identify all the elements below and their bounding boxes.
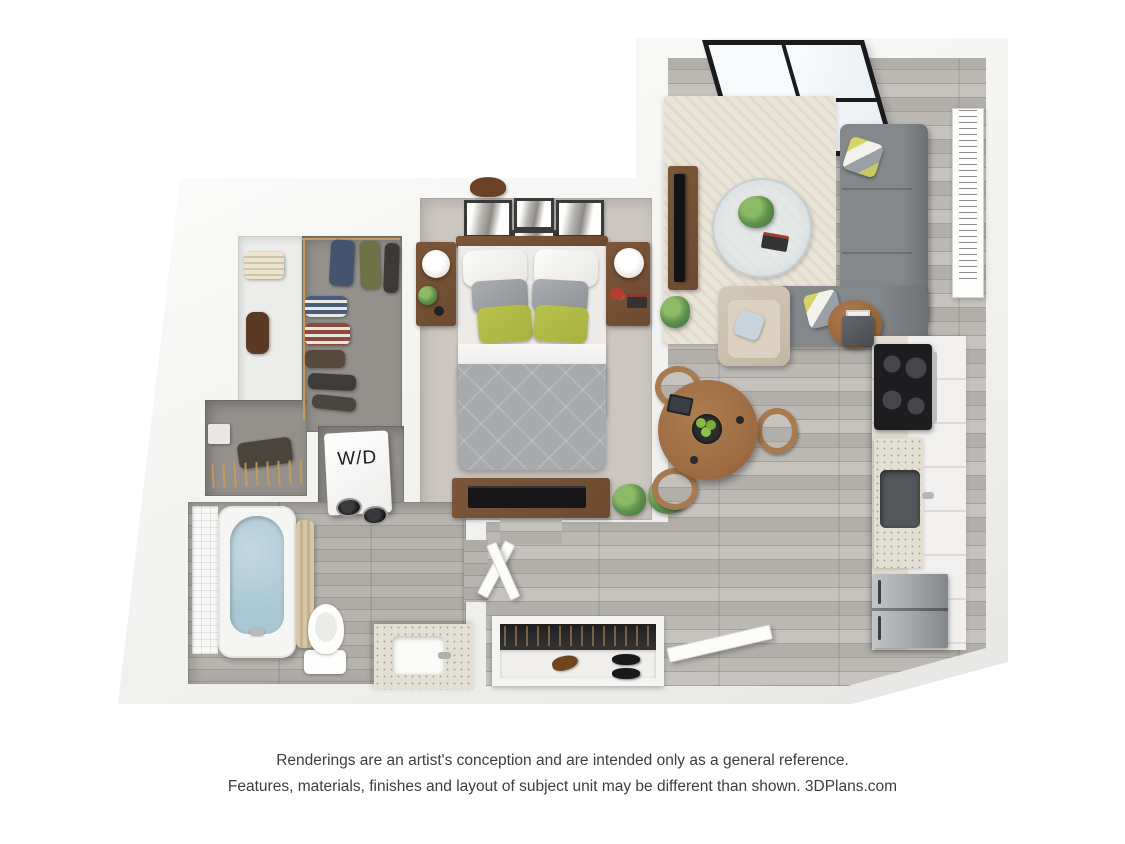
refrigerator-handle-bottom [878,616,881,640]
chair-seat [762,414,792,448]
table-cup-2 [690,456,698,464]
closet-bag-brown [246,312,269,354]
refrigerator-door-split [872,608,948,611]
wall-art-panels [952,108,984,298]
living-room-tv [674,174,685,282]
bedroom-doorway [500,518,562,544]
books-on-nightstand [627,294,647,308]
sofa-cushion-seam [842,188,912,190]
hanging-shirt-navy [329,239,355,286]
hanging-shirt-striped-2 [305,323,350,345]
entry-closet-hangers [504,626,652,646]
disclaimer-line-1: Renderings are an artist's conception an… [0,748,1125,774]
lamp-left [422,250,450,278]
bedroom-plant [612,484,646,516]
vanity-sink [392,636,444,674]
nightstand-plant [418,286,437,305]
frame-art [559,203,601,235]
toilet-seat [315,612,337,642]
green-apples [696,418,706,428]
bedroom-tv [468,486,586,508]
handbag-on-wall [470,177,506,197]
bed-pillow-green-left [477,304,533,344]
closet-box [208,424,230,444]
lamp-right [614,248,644,278]
living-room-plant [660,296,690,328]
bed-duvet [458,364,606,470]
coffee-table [712,178,812,278]
kitchen-sink [880,470,920,528]
picture-frame-3 [556,200,604,238]
floorplan-rendering: W/D [0,0,1125,844]
closet-rod-top [302,238,400,240]
hanger-row [211,460,304,489]
frame-art [467,203,509,235]
hanging-shirt-brown [305,350,345,368]
stove-cooktop [874,344,932,430]
refrigerator-handle-top [878,580,881,604]
shoes-black-pair-1 [612,654,640,665]
bed-pillow-green-right [533,304,589,344]
table-cup-1 [736,416,744,424]
picture-frame-1 [464,200,512,238]
red-flowers [610,288,624,300]
refrigerator [872,574,948,648]
wall-art-skyline [959,110,977,283]
disclaimer-line-2: Features, materials, finishes and layout… [0,774,1125,800]
hanging-shirt-striped-1 [305,296,347,317]
frame-art [517,201,551,227]
storage-basket [244,252,284,279]
sofa-cushion-seam [842,252,912,254]
bathtub-water [230,516,284,634]
picture-frame-2 [514,198,554,230]
hanging-pants-1 [308,373,357,391]
shoes-black-pair-2 [612,668,640,679]
oven-handle [932,352,937,422]
chair-seat [658,474,692,504]
kitchen-faucet [922,492,934,499]
hanging-shirt-olive [359,241,381,290]
washer-dryer-label: W/D [337,447,378,471]
hanging-jacket-dark [383,243,400,293]
tub-faucet [250,628,264,635]
alarm-clock [434,306,444,316]
sink-faucet [438,652,451,659]
coffee-maker [842,316,874,346]
coffee-table-plant [738,196,774,228]
dining-chair-2 [756,408,798,454]
shower-tile-wall [192,506,218,654]
